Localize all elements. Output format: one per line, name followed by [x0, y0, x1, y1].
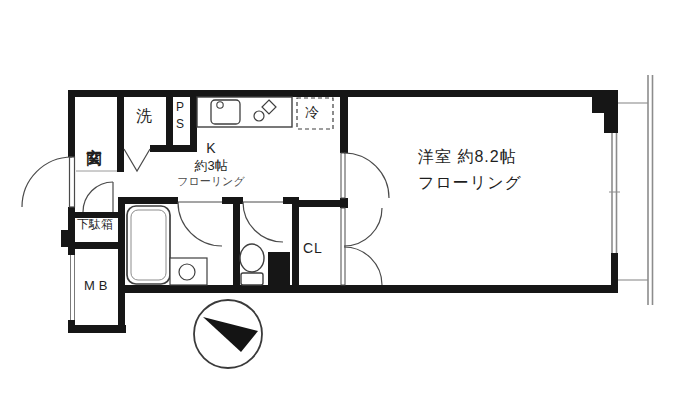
toilet-base-icon	[241, 273, 263, 285]
shoe-cabinet-label: 下駄箱	[77, 216, 113, 233]
wall-bath-top	[120, 197, 178, 204]
meter-box-label: MB	[84, 278, 112, 293]
entrance-door-arc	[22, 157, 72, 207]
kitchen-label: K 約3帖 フローリング	[163, 140, 259, 189]
wall-top	[68, 90, 598, 97]
wall-entrance-laundry	[117, 90, 124, 172]
shoe-cabinet-wall-bottom	[68, 242, 125, 249]
mb-wall-bottom	[68, 325, 126, 333]
meter-box-louver	[71, 255, 75, 320]
compass	[194, 300, 262, 368]
closet-door-arc-upper	[344, 208, 382, 246]
refrigerator-label: 冷	[305, 104, 319, 122]
kitchen-floor-type: フローリング	[163, 174, 259, 189]
bathtub	[127, 206, 170, 284]
wall-kitchen-western-mid	[340, 198, 348, 208]
kitchen-size: 約3帖	[163, 157, 259, 174]
duct-block	[268, 252, 290, 288]
north-arrow-icon	[203, 317, 258, 352]
balcony	[618, 75, 653, 305]
faucet-icon	[217, 102, 223, 108]
floorplan-drawing	[0, 0, 680, 412]
wall-left-upper	[68, 90, 75, 157]
western-room-name-size: 洋室 約8.2帖	[418, 146, 522, 168]
wall-bottom	[118, 285, 618, 293]
western-room-floor-type: フローリング	[418, 172, 522, 194]
toilet-bowl-icon	[240, 244, 264, 272]
washbasin-bowl-icon	[179, 264, 195, 280]
entrance-label: 玄関	[84, 136, 103, 142]
western-room-label: 洋室 約8.2帖 フローリング	[418, 146, 522, 194]
wall-toilet-closet	[292, 200, 299, 293]
laundry-label: 洗	[136, 106, 152, 127]
pillar-top-right	[592, 90, 618, 113]
bath-door-arc	[178, 202, 222, 246]
closet-door-arc-lower	[344, 247, 382, 285]
pillar-top-right-step	[604, 113, 618, 133]
entrance-door-leaf	[70, 157, 75, 207]
kitchen-name: K	[163, 140, 259, 157]
western-room-door-leaf	[341, 153, 345, 198]
window-right	[609, 133, 620, 253]
laundry-folding-door	[124, 149, 150, 171]
wall-closet-top	[295, 200, 345, 207]
wall-bath-toilet	[233, 197, 240, 293]
hall-door-arc	[83, 182, 113, 212]
toilet-door-arc	[243, 202, 283, 242]
pipe-space-label: PS	[173, 100, 187, 134]
wall-corridor-bath	[118, 197, 125, 332]
floorplan: 玄関 洗 PS K 約3帖 フローリング 冷 洋室 約8.2帖 フローリング C…	[0, 0, 680, 412]
pillar-left	[61, 230, 69, 247]
sink-icon	[211, 100, 240, 124]
wall-kitchen-western-upper	[340, 90, 348, 153]
western-room-door-arc	[344, 153, 389, 198]
closet-label: CL	[303, 240, 323, 256]
